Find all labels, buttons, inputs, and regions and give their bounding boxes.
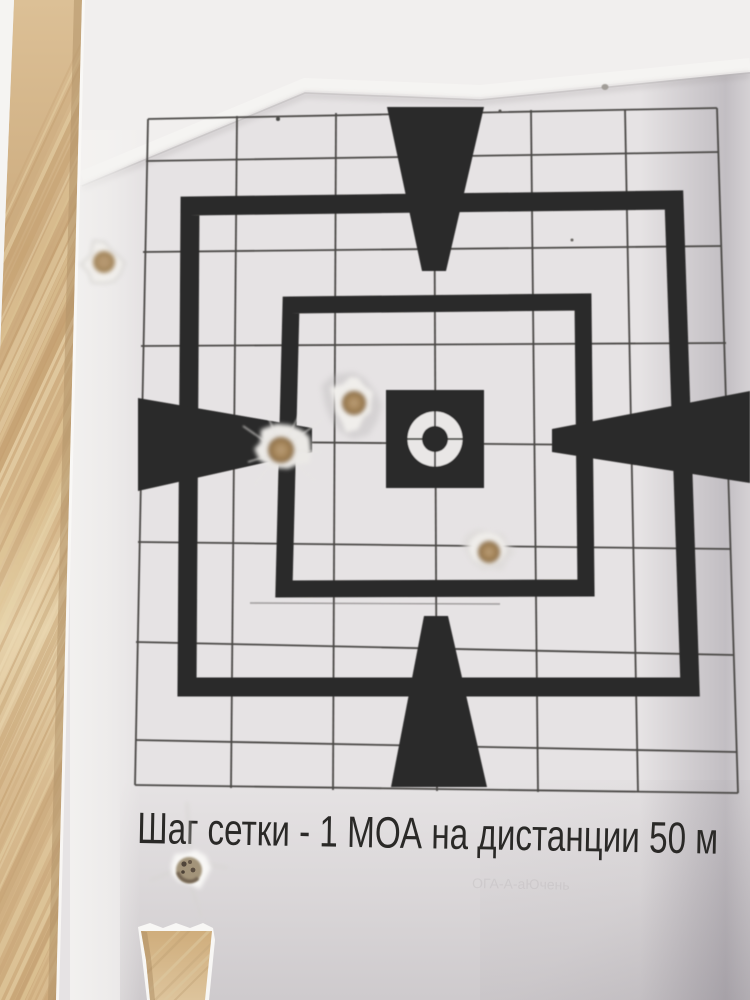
svg-text:ОГА-А-аЮчень: ОГА-А-аЮчень [472, 875, 570, 893]
